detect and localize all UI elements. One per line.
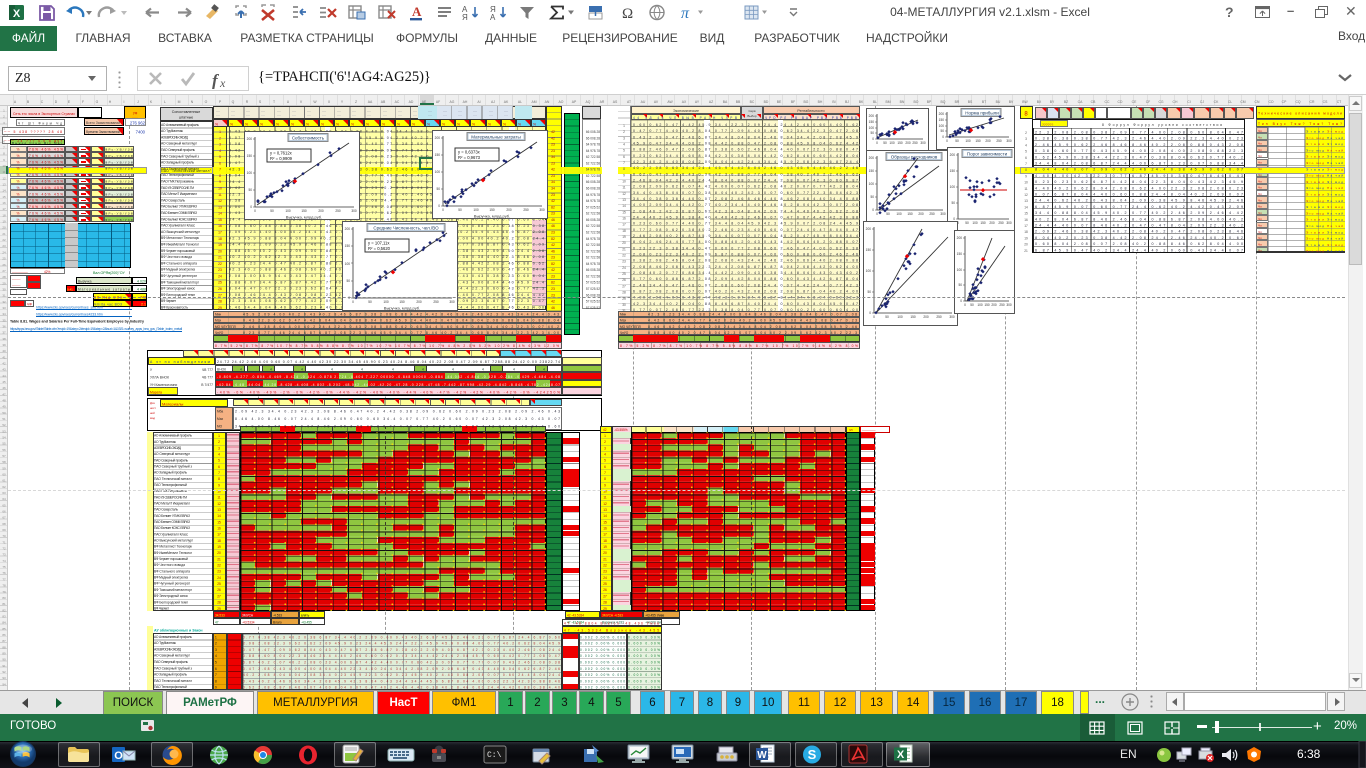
svg-text:y = 0,6373x: y = 0,6373x	[458, 150, 481, 155]
svg-text:200: 200	[345, 227, 351, 231]
svg-text:0: 0	[438, 204, 440, 208]
svg-text:Ω: Ω	[622, 6, 633, 22]
svg-text:Себестоимость: Себестоимость	[292, 136, 325, 141]
svg-text:100: 100	[977, 303, 983, 307]
svg-text:50: 50	[965, 221, 969, 225]
svg-text:100: 100	[866, 269, 872, 273]
svg-text:100: 100	[869, 182, 875, 186]
svg-text:50: 50	[885, 315, 889, 319]
svg-text:250: 250	[998, 221, 1004, 225]
svg-text:150: 150	[301, 209, 307, 213]
svg-text:150: 150	[435, 153, 441, 157]
svg-text:150: 150	[939, 118, 945, 122]
svg-text:0: 0	[869, 311, 871, 315]
svg-text:50: 50	[958, 283, 962, 287]
svg-text:Норма прибыли: Норма прибыли	[965, 111, 999, 116]
svg-text:R² = 0,9909: R² = 0,9909	[270, 156, 293, 161]
svg-text:250: 250	[929, 212, 935, 216]
svg-text:X: X	[897, 749, 905, 761]
svg-text:50: 50	[955, 139, 959, 143]
svg-text:150: 150	[869, 120, 875, 124]
svg-text:200: 200	[991, 303, 997, 307]
svg-text:200: 200	[985, 139, 991, 143]
svg-text:50: 50	[436, 187, 440, 191]
svg-text:100: 100	[896, 212, 902, 216]
svg-text:100: 100	[247, 171, 253, 175]
svg-text:200: 200	[247, 137, 253, 141]
svg-text:150: 150	[897, 141, 903, 145]
svg-text:y = 0,7612x: y = 0,7612x	[270, 151, 293, 156]
svg-text:50: 50	[940, 129, 944, 133]
svg-text:0: 0	[872, 208, 874, 212]
svg-text:200: 200	[869, 114, 875, 118]
svg-text:0: 0	[442, 208, 444, 212]
svg-text:50: 50	[883, 141, 887, 145]
svg-text:200: 200	[939, 112, 945, 116]
svg-text:200: 200	[869, 156, 875, 160]
svg-text:200: 200	[957, 236, 963, 240]
svg-text:100: 100	[889, 141, 895, 145]
svg-text:100: 100	[897, 315, 903, 319]
svg-text:150: 150	[866, 248, 872, 252]
svg-text:0: 0	[960, 299, 962, 303]
svg-text:50: 50	[951, 201, 955, 205]
svg-text:Порог зависимости: Порог зависимости	[967, 152, 1008, 157]
svg-text:150: 150	[980, 221, 986, 225]
svg-text:200: 200	[866, 227, 872, 231]
svg-text:50: 50	[368, 300, 372, 304]
svg-text:0: 0	[876, 141, 878, 145]
svg-text:100: 100	[972, 221, 978, 225]
svg-text:300: 300	[940, 212, 946, 216]
svg-text:0: 0	[352, 300, 354, 304]
svg-text:50: 50	[870, 131, 874, 135]
svg-text:200: 200	[506, 208, 512, 212]
svg-text:R² = 0,9673: R² = 0,9673	[458, 155, 481, 160]
svg-text:50: 50	[886, 212, 890, 216]
svg-text:y = 107,11x: y = 107,11x	[368, 241, 390, 246]
svg-text:50: 50	[458, 208, 462, 212]
svg-text:50: 50	[248, 188, 252, 192]
svg-text:Выручка, млрд.руб.: Выручка, млрд.руб.	[286, 215, 322, 220]
svg-text:200: 200	[435, 136, 441, 140]
svg-text:250: 250	[523, 208, 529, 212]
svg-text:200: 200	[950, 153, 956, 157]
svg-text:Я: Я	[462, 13, 468, 22]
svg-text:150: 150	[957, 252, 963, 256]
svg-text:Выручка, млрд.руб.: Выручка, млрд.руб.	[384, 306, 420, 311]
svg-text:Материальные затраты: Материальные затраты	[471, 135, 520, 140]
svg-text:50: 50	[270, 209, 274, 213]
svg-text:S: S	[808, 747, 817, 762]
svg-text:250: 250	[936, 315, 942, 319]
svg-text:150: 150	[489, 208, 495, 212]
svg-text:150: 150	[975, 139, 981, 143]
svg-text:A: A	[412, 4, 422, 19]
svg-text:50: 50	[970, 303, 974, 307]
svg-text:100: 100	[869, 126, 875, 130]
svg-text:300: 300	[539, 208, 545, 212]
svg-text:250: 250	[433, 300, 439, 304]
svg-text:300: 300	[1006, 139, 1012, 143]
svg-text:100: 100	[435, 170, 441, 174]
svg-text:150: 150	[247, 154, 253, 158]
svg-text:200: 200	[989, 221, 995, 225]
svg-text:0: 0	[942, 135, 944, 139]
svg-text:150: 150	[869, 169, 875, 173]
svg-text:50: 50	[346, 279, 350, 283]
svg-text:π: π	[681, 5, 690, 22]
svg-text:250: 250	[996, 139, 1002, 143]
svg-text:150: 150	[399, 300, 405, 304]
svg-text:А: А	[490, 13, 496, 22]
svg-text:150: 150	[984, 303, 990, 307]
svg-text:Выручка, млрд.руб.: Выручка, млрд.руб.	[474, 214, 510, 219]
svg-text:0: 0	[876, 212, 878, 216]
svg-text:200: 200	[905, 141, 911, 145]
svg-text:O: O	[114, 750, 123, 762]
svg-text:0: 0	[946, 139, 948, 143]
svg-text:200: 200	[918, 212, 924, 216]
svg-text:300: 300	[1006, 303, 1012, 307]
svg-text:150: 150	[345, 244, 351, 248]
svg-text:f: f	[212, 71, 220, 89]
svg-text:100: 100	[965, 139, 971, 143]
svg-text:300: 300	[351, 209, 357, 213]
svg-text:0: 0	[250, 205, 252, 209]
svg-text:200: 200	[318, 209, 324, 213]
svg-text:100: 100	[383, 300, 389, 304]
svg-text:300: 300	[1006, 221, 1012, 225]
svg-text:0: 0	[872, 137, 874, 141]
svg-text:0: 0	[873, 315, 875, 319]
svg-text:100: 100	[950, 185, 956, 189]
svg-text:X: X	[13, 8, 21, 20]
svg-text:50: 50	[867, 290, 871, 294]
svg-text:100: 100	[285, 209, 291, 213]
svg-text:300: 300	[449, 300, 455, 304]
svg-text:150: 150	[910, 315, 916, 319]
svg-text:100: 100	[345, 262, 351, 266]
svg-text:100: 100	[957, 268, 963, 272]
svg-text:0: 0	[964, 303, 966, 307]
svg-text:x: x	[219, 76, 226, 89]
svg-text:300: 300	[920, 141, 926, 145]
svg-text:250: 250	[335, 209, 341, 213]
svg-text:0: 0	[254, 209, 256, 213]
svg-text:300: 300	[949, 315, 955, 319]
svg-text:C:\: C:\	[487, 751, 502, 760]
svg-text:Средние Численность, чел./ВО: Средние Численность, чел./ВО	[373, 226, 439, 231]
svg-text:250: 250	[999, 303, 1005, 307]
svg-text:R² = 0,5620: R² = 0,5620	[368, 246, 391, 251]
svg-text:200: 200	[923, 315, 929, 319]
svg-text:250: 250	[912, 141, 918, 145]
svg-text:150: 150	[950, 169, 956, 173]
svg-text:W: W	[757, 750, 767, 761]
svg-text:200: 200	[416, 300, 422, 304]
svg-text:100: 100	[473, 208, 479, 212]
svg-text:100: 100	[939, 124, 945, 128]
svg-text:150: 150	[907, 212, 913, 216]
svg-text:50: 50	[870, 195, 874, 199]
